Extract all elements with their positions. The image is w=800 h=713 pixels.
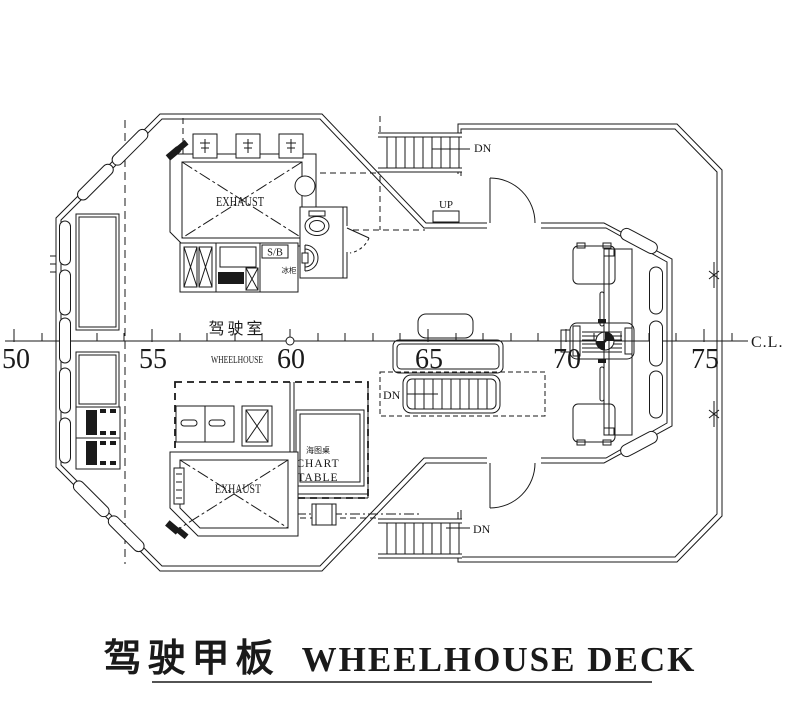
dn-bottom-label: DN bbox=[473, 522, 491, 536]
svg-text:驾驶甲板WHEELHOUSE DECK: 驾驶甲板WHEELHOUSE DECK bbox=[104, 638, 697, 680]
labels: EXHAUST EXHAUST 驾驶室 WHEELHOUSE DN UP DN … bbox=[2, 141, 783, 536]
frame-50: 50 bbox=[2, 344, 30, 375]
exhaust-top-label: EXHAUST bbox=[216, 195, 264, 210]
toilet-door-swing bbox=[350, 238, 369, 253]
deck-doors bbox=[487, 178, 541, 508]
up-label: UP bbox=[439, 199, 453, 211]
title-cn: 驾驶甲板 bbox=[104, 638, 280, 680]
frame-ruler bbox=[5, 329, 748, 345]
up-step bbox=[433, 211, 459, 222]
frame-55: 55 bbox=[139, 344, 167, 375]
binnacle bbox=[418, 314, 473, 338]
stairs-top bbox=[378, 133, 470, 172]
chart-table-label-cn: 海图桌 bbox=[306, 445, 330, 455]
stairs-middle bbox=[403, 375, 500, 413]
exhaust-bottom-label: EXHAUST bbox=[215, 481, 261, 496]
centerline-label: C.L. bbox=[751, 334, 783, 351]
chart-table-label-en2: TABLE bbox=[297, 472, 338, 484]
galley-counter bbox=[180, 243, 260, 292]
toilet-room bbox=[300, 207, 369, 278]
aft-deck-house bbox=[458, 124, 722, 562]
dn-top-label: DN bbox=[474, 141, 492, 155]
forward-console-lower bbox=[76, 352, 119, 407]
wheelhouse-label-cn: 驾驶室 bbox=[208, 320, 265, 338]
frame-65: 65 bbox=[415, 344, 443, 375]
frame-60: 60 bbox=[277, 344, 305, 375]
wheelhouse-label-en: WHEELHOUSE bbox=[211, 355, 263, 366]
electric-panels bbox=[76, 407, 120, 469]
pantry-room: S/B 冰柜 bbox=[260, 243, 298, 292]
stove-icon bbox=[218, 272, 244, 284]
funnel-pipe bbox=[295, 176, 315, 196]
chart-table-label-en1: CHART bbox=[296, 458, 339, 470]
wheelhouse-hull bbox=[50, 114, 672, 571]
frame-70: 70 bbox=[553, 344, 581, 375]
drawing-title: 驾驶甲板WHEELHOUSE DECK bbox=[104, 638, 697, 682]
frame-75: 75 bbox=[691, 344, 719, 375]
forward-console-upper bbox=[76, 214, 119, 330]
center-console bbox=[393, 314, 503, 373]
pantry-equip-label: 冰柜 bbox=[282, 265, 297, 275]
door-swing-bottom bbox=[490, 463, 535, 508]
helm-wheel bbox=[596, 332, 614, 350]
vent-boxes bbox=[193, 134, 303, 158]
pantry-label: S/B bbox=[267, 248, 283, 259]
dn-mid-label: DN bbox=[383, 388, 401, 402]
title-en: WHEELHOUSE DECK bbox=[302, 640, 697, 679]
wheelhouse-deck-drawing: S/B 冰柜 海图桌 CHART TABLE bbox=[0, 0, 800, 713]
stairs-bottom bbox=[378, 519, 470, 558]
door-swing-top bbox=[490, 178, 535, 223]
